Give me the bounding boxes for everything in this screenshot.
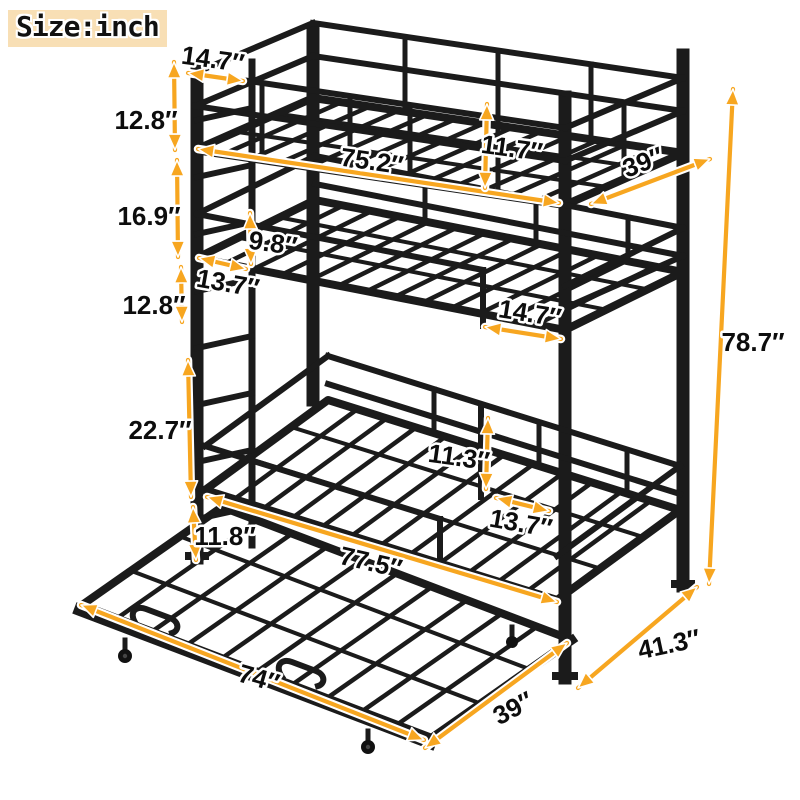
arrowhead-icon xyxy=(167,62,181,78)
dimension-overall-height: 78.7″ xyxy=(703,89,785,584)
dimension-top-rail-section-width: 14.7″ xyxy=(180,40,247,86)
dimension-middle-rail-section-width: 14.7″ xyxy=(485,293,563,343)
arrowhead-icon xyxy=(171,241,185,257)
dimension-label: 16.9″ xyxy=(117,201,180,231)
arrowhead-icon xyxy=(168,134,182,150)
top-bunk-guardrails xyxy=(195,23,683,161)
arrowhead-icon xyxy=(693,158,710,171)
arrowhead-icon xyxy=(480,104,494,120)
size-unit-badge: Size:inch xyxy=(8,10,167,47)
dimension-label: 74″ xyxy=(235,658,283,698)
dimension-label: 12.8″ xyxy=(114,105,177,135)
arrowhead-icon xyxy=(170,160,184,176)
dimension-middle-to-bottom-gap: 22.7″ xyxy=(128,360,197,497)
product-dimension-diagram: 14.7″12.8″16.9″12.8″22.7″11.8″9.8″13.7″7… xyxy=(0,0,800,800)
dimension-trundle-width: 39″ xyxy=(425,643,567,748)
dimension-label: 22.7″ xyxy=(128,415,191,445)
dimension-middle-rail-height: 12.8″ xyxy=(122,267,188,322)
dimension-label: 11.8″ xyxy=(194,521,256,551)
dimension-trundle-length: 74″ xyxy=(81,604,424,740)
dimension-top-guardrail-height: 12.8″ xyxy=(114,62,181,150)
dimension-label: 78.7″ xyxy=(721,327,784,357)
dimension-overall-depth: 41.3″ xyxy=(578,587,703,688)
dimension-label: 12.8″ xyxy=(122,290,185,320)
arrowhead-icon xyxy=(174,267,188,283)
bunk-bed-diagram-canvas: 14.7″12.8″16.9″12.8″22.7″11.8″9.8″13.7″7… xyxy=(0,0,800,800)
dimension-top-to-middle-gap: 16.9″ xyxy=(117,160,184,257)
